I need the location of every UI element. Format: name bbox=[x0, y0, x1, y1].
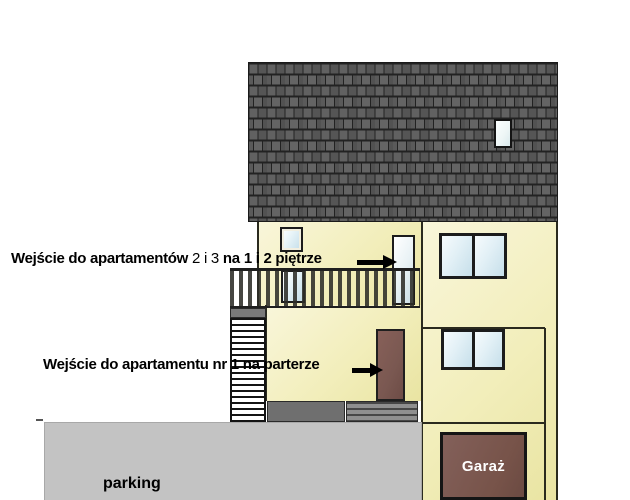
elevation-drawing: Garaż parking Wejście do apartamentów2 i… bbox=[0, 0, 630, 500]
right-arrow-icon bbox=[383, 255, 397, 269]
roof-skylight-window bbox=[494, 119, 512, 148]
annotation-apartment-numbers: 2 i 3 bbox=[192, 250, 219, 267]
second-floor-small-window bbox=[280, 227, 303, 252]
window-pane bbox=[444, 332, 472, 367]
wall-divider-line bbox=[421, 422, 545, 424]
right-arrow-icon bbox=[352, 368, 370, 373]
annotation-text: Wejście do apartamentów bbox=[11, 250, 188, 267]
garage-door: Garaż bbox=[440, 432, 527, 500]
window-pane bbox=[475, 332, 503, 367]
wall-corner-line bbox=[544, 328, 546, 500]
stair-landing bbox=[230, 308, 266, 318]
parking-area bbox=[45, 423, 421, 500]
window-pane bbox=[475, 236, 505, 276]
parking-label: parking bbox=[103, 475, 161, 493]
retaining-wall bbox=[346, 401, 418, 422]
tick-mark bbox=[36, 419, 43, 421]
annotation-text: na bbox=[223, 250, 240, 267]
garage-label: Garaż bbox=[462, 458, 505, 475]
annotation-upper-entrance: Wejście do apartamentów2 i 3na1 i 2 pięt… bbox=[11, 250, 326, 267]
balcony-railing bbox=[230, 268, 420, 308]
annotation-floor-numbers: 1 i 2 piętrze bbox=[244, 250, 322, 267]
right-arrow-icon bbox=[357, 260, 383, 265]
right-arrow-icon bbox=[370, 363, 383, 377]
lower-double-window bbox=[441, 329, 505, 370]
window-pane bbox=[442, 236, 472, 276]
annotation-ground-entrance: Wejście do apartamentu nr 1 na parterze bbox=[43, 356, 319, 373]
upper-double-window bbox=[439, 233, 507, 279]
entrance-platform bbox=[267, 401, 345, 422]
